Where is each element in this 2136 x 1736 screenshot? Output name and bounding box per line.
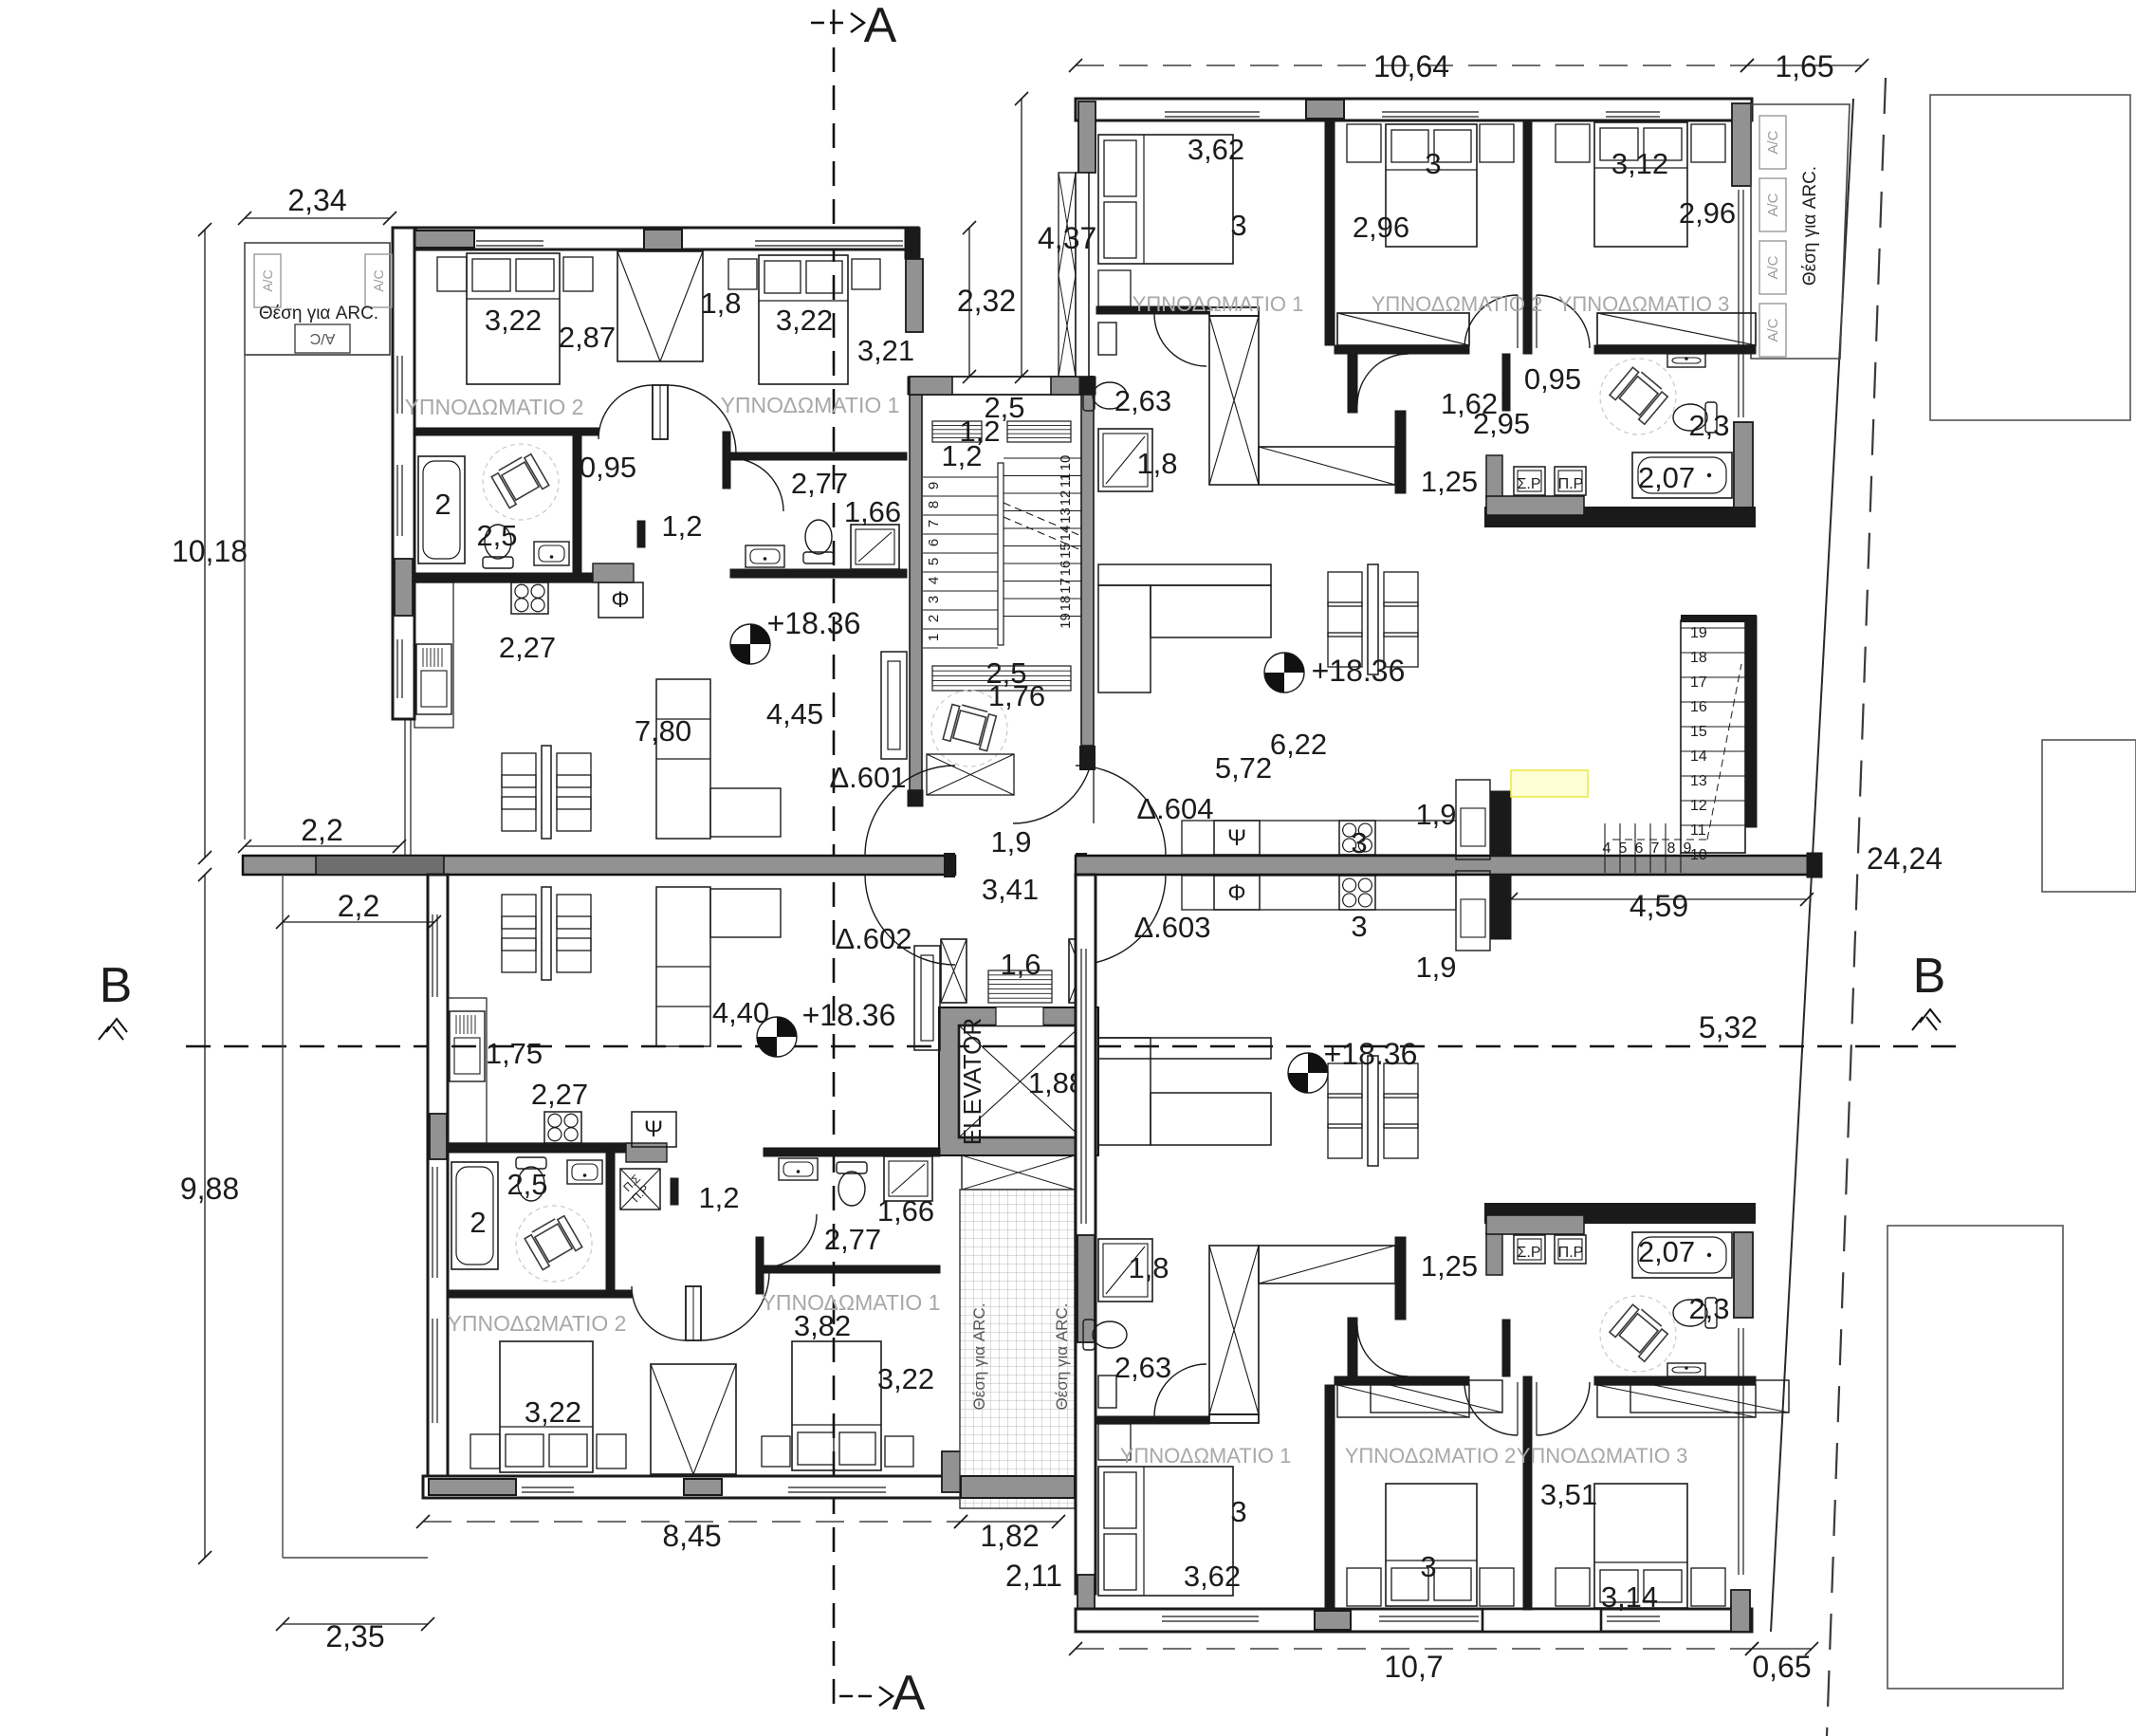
svg-text:14: 14	[1690, 748, 1707, 765]
svg-text:4: 4	[926, 577, 942, 584]
svg-text:+18.36: +18.36	[1324, 1037, 1418, 1071]
svg-text:A/C: A/C	[1765, 318, 1781, 342]
svg-text:B: B	[1913, 949, 1946, 1004]
svg-text:3: 3	[1351, 910, 1367, 943]
svg-text:8,45: 8,45	[662, 1519, 721, 1553]
svg-text:A/C: A/C	[260, 269, 275, 291]
svg-text:11: 11	[1058, 473, 1074, 489]
svg-text:ΥΠΝΟΔΩΜΑΤΙΟ 3: ΥΠΝΟΔΩΜΑΤΙΟ 3	[1517, 1444, 1688, 1468]
svg-text:ELEVATOR: ELEVATOR	[958, 1018, 986, 1145]
svg-text:24,24: 24,24	[1867, 841, 1943, 876]
svg-text:A/C: A/C	[371, 269, 386, 291]
svg-text:4,40: 4,40	[712, 996, 769, 1029]
svg-text:Δ.602: Δ.602	[835, 922, 911, 955]
svg-text:A: A	[893, 1666, 926, 1721]
svg-text:2,77: 2,77	[791, 467, 848, 500]
svg-text:3,21: 3,21	[857, 334, 914, 367]
svg-text:Θέση για ARC.: Θέση για ARC.	[1800, 166, 1820, 286]
svg-text:ΥΠΝΟΔΩΜΑΤΙΟ 1: ΥΠΝΟΔΩΜΑΤΙΟ 1	[721, 393, 900, 417]
svg-text:5: 5	[1619, 840, 1628, 857]
svg-text:18: 18	[1058, 596, 1074, 612]
svg-text:1,75: 1,75	[486, 1037, 543, 1070]
svg-text:3: 3	[1230, 209, 1246, 242]
svg-text:1,8: 1,8	[1128, 1251, 1169, 1284]
svg-text:8: 8	[1667, 840, 1676, 857]
svg-text:A/C: A/C	[1765, 130, 1781, 154]
svg-text:17: 17	[1058, 578, 1074, 594]
svg-text:2,5: 2,5	[476, 519, 517, 552]
svg-text:Σ.Ρ: Σ.Ρ	[1517, 476, 1540, 492]
svg-text:3,41: 3,41	[982, 873, 1039, 906]
svg-text:A: A	[864, 0, 897, 53]
svg-text:ΥΠΝΟΔΩΜΑΤΙΟ 2: ΥΠΝΟΔΩΜΑΤΙΟ 2	[1345, 1444, 1517, 1468]
svg-text:6,22: 6,22	[1270, 728, 1327, 761]
svg-text:16: 16	[1690, 699, 1707, 715]
svg-text:0,95: 0,95	[1524, 362, 1581, 396]
svg-text:4: 4	[1603, 840, 1611, 857]
svg-text:6: 6	[1635, 840, 1644, 857]
svg-text:8: 8	[926, 501, 942, 508]
svg-text:Ψ: Ψ	[1227, 825, 1246, 851]
svg-text:3,22: 3,22	[525, 1395, 581, 1429]
svg-text:A/C: A/C	[1765, 255, 1781, 279]
svg-text:7: 7	[1651, 840, 1660, 857]
svg-text:12: 12	[1058, 490, 1074, 507]
svg-text:3: 3	[1230, 1495, 1246, 1528]
svg-text:13: 13	[1690, 773, 1707, 789]
svg-text:Φ: Φ	[1227, 880, 1245, 906]
svg-text:5,72: 5,72	[1215, 751, 1272, 785]
svg-text:2,32: 2,32	[957, 284, 1016, 318]
svg-text:1: 1	[926, 634, 942, 641]
svg-text:2,95: 2,95	[1473, 407, 1530, 440]
svg-text:9: 9	[926, 482, 942, 489]
svg-text:ΥΠΝΟΔΩΜΑΤΙΟ 2: ΥΠΝΟΔΩΜΑΤΙΟ 2	[405, 395, 584, 419]
svg-text:2,96: 2,96	[1353, 211, 1409, 244]
svg-text:1,65: 1,65	[1775, 49, 1833, 83]
svg-text:9: 9	[1684, 840, 1692, 857]
svg-text:2: 2	[926, 615, 942, 622]
svg-text:1,9: 1,9	[1415, 951, 1456, 984]
svg-text:1,2: 1,2	[698, 1181, 739, 1214]
svg-text:2,3: 2,3	[1688, 409, 1729, 442]
svg-text:11: 11	[1690, 822, 1706, 839]
svg-text:10: 10	[1690, 847, 1707, 863]
svg-text:3: 3	[926, 596, 942, 603]
svg-text:1,25: 1,25	[1421, 465, 1478, 498]
svg-text:3,62: 3,62	[1184, 1560, 1241, 1593]
svg-text:2,35: 2,35	[325, 1619, 384, 1653]
svg-text:2: 2	[434, 488, 451, 521]
svg-text:B: B	[100, 958, 133, 1013]
svg-text:15: 15	[1690, 724, 1707, 740]
svg-text:19: 19	[1058, 613, 1074, 629]
svg-text:3: 3	[1425, 147, 1441, 180]
svg-text:3: 3	[1351, 826, 1367, 859]
svg-text:Φ: Φ	[611, 587, 629, 613]
svg-text:2,07: 2,07	[1638, 461, 1695, 494]
svg-text:2,2: 2,2	[301, 813, 342, 847]
svg-text:2,5: 2,5	[506, 1168, 547, 1201]
svg-text:3,82: 3,82	[794, 1309, 851, 1342]
svg-text:ΥΠΝΟΔΩΜΑΤΙΟ 1: ΥΠΝΟΔΩΜΑΤΙΟ 1	[1132, 292, 1304, 316]
svg-text:15: 15	[1058, 543, 1074, 559]
svg-text:Δ.601: Δ.601	[829, 761, 906, 794]
svg-text:0,95: 0,95	[580, 451, 636, 484]
svg-text:3,22: 3,22	[485, 304, 542, 337]
svg-text:Π.Ρ: Π.Ρ	[1558, 476, 1584, 492]
svg-text:3,51: 3,51	[1540, 1478, 1597, 1511]
svg-text:2,63: 2,63	[1114, 384, 1171, 417]
svg-text:2: 2	[470, 1206, 486, 1239]
svg-text:5,32: 5,32	[1699, 1010, 1758, 1044]
svg-text:19: 19	[1690, 625, 1707, 641]
svg-text:1,9: 1,9	[990, 825, 1031, 859]
svg-text:+18.36: +18.36	[767, 606, 861, 640]
svg-text:3,14: 3,14	[1601, 1580, 1658, 1614]
svg-text:12: 12	[1690, 798, 1707, 814]
svg-text:3,12: 3,12	[1611, 147, 1668, 180]
svg-text:18: 18	[1690, 650, 1707, 666]
svg-text:1,8: 1,8	[700, 286, 741, 320]
svg-text:Ψ: Ψ	[644, 1117, 663, 1142]
svg-text:4,45: 4,45	[766, 697, 823, 730]
svg-text:10,64: 10,64	[1373, 49, 1449, 83]
svg-text:4,37: 4,37	[1038, 221, 1096, 255]
svg-text:3,22: 3,22	[877, 1362, 934, 1395]
svg-text:16: 16	[1058, 561, 1074, 577]
svg-text:2,11: 2,11	[1005, 1559, 1062, 1593]
svg-text:1,2: 1,2	[661, 509, 702, 543]
svg-text:14: 14	[1058, 526, 1074, 542]
svg-text:2,27: 2,27	[531, 1078, 588, 1111]
svg-text:2,07: 2,07	[1638, 1235, 1695, 1268]
svg-text:Θέση για ARC.: Θέση για ARC.	[970, 1303, 988, 1411]
svg-text:3,22: 3,22	[776, 304, 833, 337]
svg-text:2,2: 2,2	[338, 889, 379, 923]
svg-text:1,76: 1,76	[988, 679, 1045, 712]
svg-text:Θέση για ARC.: Θέση για ARC.	[1053, 1303, 1071, 1411]
svg-text:ΥΠΝΟΔΩΜΑΤΙΟ 2: ΥΠΝΟΔΩΜΑΤΙΟ 2	[448, 1311, 627, 1336]
svg-text:10: 10	[1058, 455, 1074, 471]
svg-text:+18.36: +18.36	[1312, 654, 1406, 688]
svg-text:1,25: 1,25	[1421, 1249, 1478, 1283]
svg-text:2,87: 2,87	[559, 321, 616, 354]
svg-text:7: 7	[926, 520, 942, 527]
svg-text:3: 3	[1420, 1550, 1436, 1583]
svg-text:A/C: A/C	[1765, 193, 1781, 216]
svg-text:Π.Ρ: Π.Ρ	[1558, 1245, 1584, 1261]
svg-text:Δ.603: Δ.603	[1133, 911, 1210, 944]
svg-text:ΥΠΝΟΔΩΜΑΤΙΟ 2: ΥΠΝΟΔΩΜΑΤΙΟ 2	[1372, 292, 1543, 316]
svg-text:+18.36: +18.36	[802, 998, 896, 1032]
svg-text:1,8: 1,8	[1136, 447, 1177, 480]
svg-text:9,88: 9,88	[180, 1172, 239, 1206]
svg-text:ΥΠΝΟΔΩΜΑΤΙΟ 3: ΥΠΝΟΔΩΜΑΤΙΟ 3	[1558, 292, 1730, 316]
svg-text:1,9: 1,9	[1415, 798, 1456, 831]
svg-text:4,59: 4,59	[1630, 889, 1688, 923]
svg-text:1,82: 1,82	[980, 1519, 1039, 1553]
svg-text:Δ.604: Δ.604	[1136, 792, 1213, 825]
svg-text:Σ.Ρ: Σ.Ρ	[1517, 1245, 1540, 1261]
svg-text:13: 13	[1058, 508, 1074, 524]
svg-text:ΥΠΝΟΔΩΜΑΤΙΟ 1: ΥΠΝΟΔΩΜΑΤΙΟ 1	[1120, 1444, 1292, 1468]
svg-text:1,66: 1,66	[877, 1194, 934, 1228]
svg-text:3,62: 3,62	[1188, 133, 1244, 166]
svg-text:1,2: 1,2	[941, 439, 982, 472]
svg-text:10,7: 10,7	[1384, 1650, 1443, 1684]
svg-text:2,77: 2,77	[824, 1223, 881, 1256]
svg-text:17: 17	[1690, 674, 1707, 691]
svg-text:2,63: 2,63	[1114, 1351, 1171, 1384]
svg-text:7,80: 7,80	[635, 714, 691, 748]
svg-text:5: 5	[926, 558, 942, 565]
svg-text:6: 6	[926, 539, 942, 546]
svg-text:1,6: 1,6	[1000, 948, 1040, 981]
svg-text:2,34: 2,34	[287, 183, 346, 217]
svg-text:A/C: A/C	[310, 330, 336, 346]
svg-text:2,96: 2,96	[1679, 196, 1736, 230]
svg-text:0,65: 0,65	[1752, 1650, 1811, 1684]
svg-text:2,3: 2,3	[1688, 1292, 1729, 1325]
svg-text:Θέση για ARC.: Θέση για ARC.	[259, 304, 378, 323]
svg-text:10,18: 10,18	[172, 534, 248, 568]
svg-text:2,27: 2,27	[499, 631, 556, 664]
svg-text:1,66: 1,66	[844, 495, 901, 528]
